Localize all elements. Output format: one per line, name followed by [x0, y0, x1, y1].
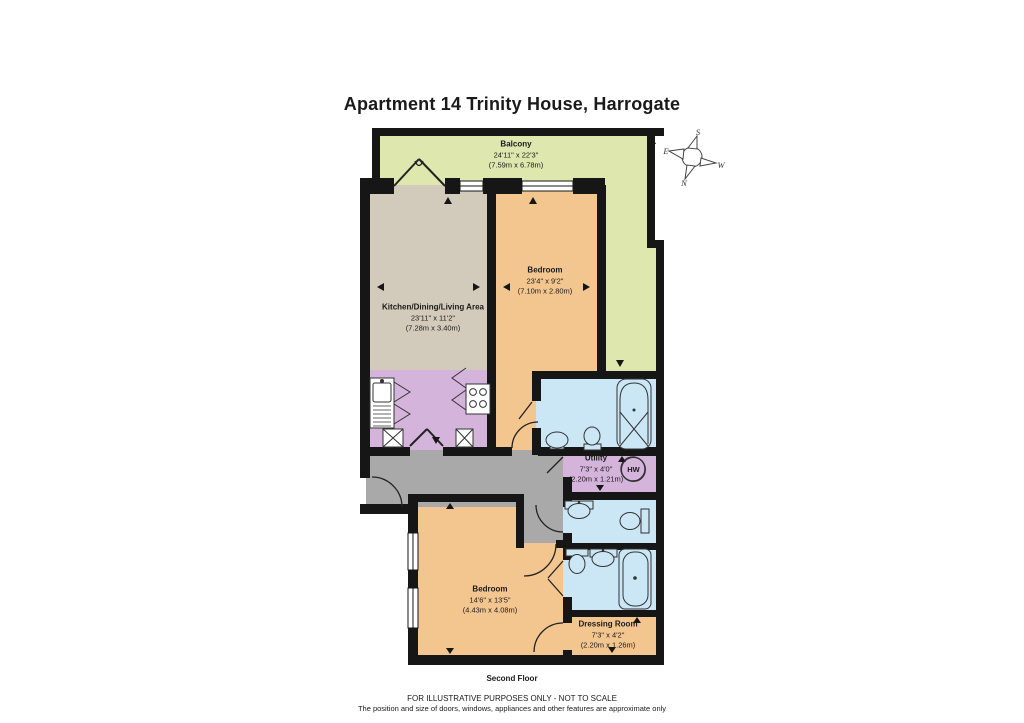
compass-east-label: E: [663, 146, 668, 156]
room-dim-metric: (7.59m x 6.78m): [489, 160, 544, 171]
hob-unit: [466, 384, 490, 414]
compass-point-south: [688, 136, 697, 149]
compass-icon: [669, 136, 716, 179]
compass-point-west: [700, 158, 716, 166]
hot-water-label: HW: [621, 457, 646, 482]
room-name: Bedroom: [518, 265, 573, 276]
compass-south-label: S: [696, 127, 700, 137]
basin: [568, 504, 590, 519]
dressing-room-label: Dressing Room 7'3" x 4'2" (2.20m x 1.26m…: [578, 619, 637, 651]
disclaimer-line2: The position and size of doors, windows,…: [0, 704, 1024, 713]
drain: [633, 576, 637, 580]
basin: [546, 432, 568, 448]
room-dim-metric: (4.43m x 4.08m): [463, 605, 518, 616]
floor-label: Second Floor: [0, 674, 1024, 683]
bedroom1-label: Bedroom 23'4" x 9'2" (7.10m x 2.80m): [518, 265, 573, 297]
bedroom2-label: Bedroom 14'6" x 13'5" (4.43m x 4.08m): [463, 584, 518, 616]
room-dim-imperial: 23'11" x 11'2": [382, 313, 484, 324]
sink-bowl: [373, 383, 391, 402]
room-dim-imperial: 7'3" x 4'2": [578, 630, 637, 641]
basin-tap: [578, 501, 581, 504]
compass-north-label: N: [681, 178, 687, 188]
room-dim-imperial: 23'4" x 9'2": [518, 276, 573, 287]
room-name: Utility: [569, 453, 624, 464]
balcony-label: Balcony 24'11" x 22'3" (7.59m x 6.78m): [489, 139, 544, 171]
compass-west-label: W: [717, 160, 724, 170]
room-dim-imperial: 24'11" x 22'3": [489, 150, 544, 161]
room-dim-imperial: 14'6" x 13'5": [463, 595, 518, 606]
basin-tap: [602, 549, 605, 552]
room-name: Bedroom: [463, 584, 518, 595]
room-dim-metric: (7.10m x 2.80m): [518, 286, 573, 297]
toilet-pan: [569, 555, 585, 574]
utility-label: Utility 7'3" x 4'0" (2.20m x 1.21m): [569, 453, 624, 485]
room-name: Balcony: [489, 139, 544, 150]
disclaimer-line1: FOR ILLUSTRATIVE PURPOSES ONLY - NOT TO …: [0, 694, 1024, 703]
toilet-pan: [620, 513, 640, 530]
living-floor: [366, 185, 495, 370]
room-name: Dressing Room: [578, 619, 637, 630]
toilet-cistern: [641, 509, 649, 533]
floorplan-page: Apartment 14 Trinity House, Harrogate: [0, 0, 1024, 723]
drain: [633, 409, 636, 412]
compass-point-north: [685, 165, 695, 179]
room-dim-metric: (7.28m x 3.40m): [382, 323, 484, 334]
toilet-pan: [584, 427, 600, 445]
kitchen-living-label: Kitchen/Dining/Living Area 23'11" x 11'2…: [382, 302, 484, 334]
sink-tap: [381, 380, 384, 383]
room-dim-imperial: 7'3" x 4'0": [569, 464, 624, 475]
room-dim-metric: (2.20m x 1.21m): [569, 474, 624, 485]
compass-point-east: [669, 149, 684, 159]
room-name: Kitchen/Dining/Living Area: [382, 302, 484, 313]
basin: [592, 552, 614, 567]
room-dim-metric: (2.20m x 1.26m): [578, 640, 637, 651]
